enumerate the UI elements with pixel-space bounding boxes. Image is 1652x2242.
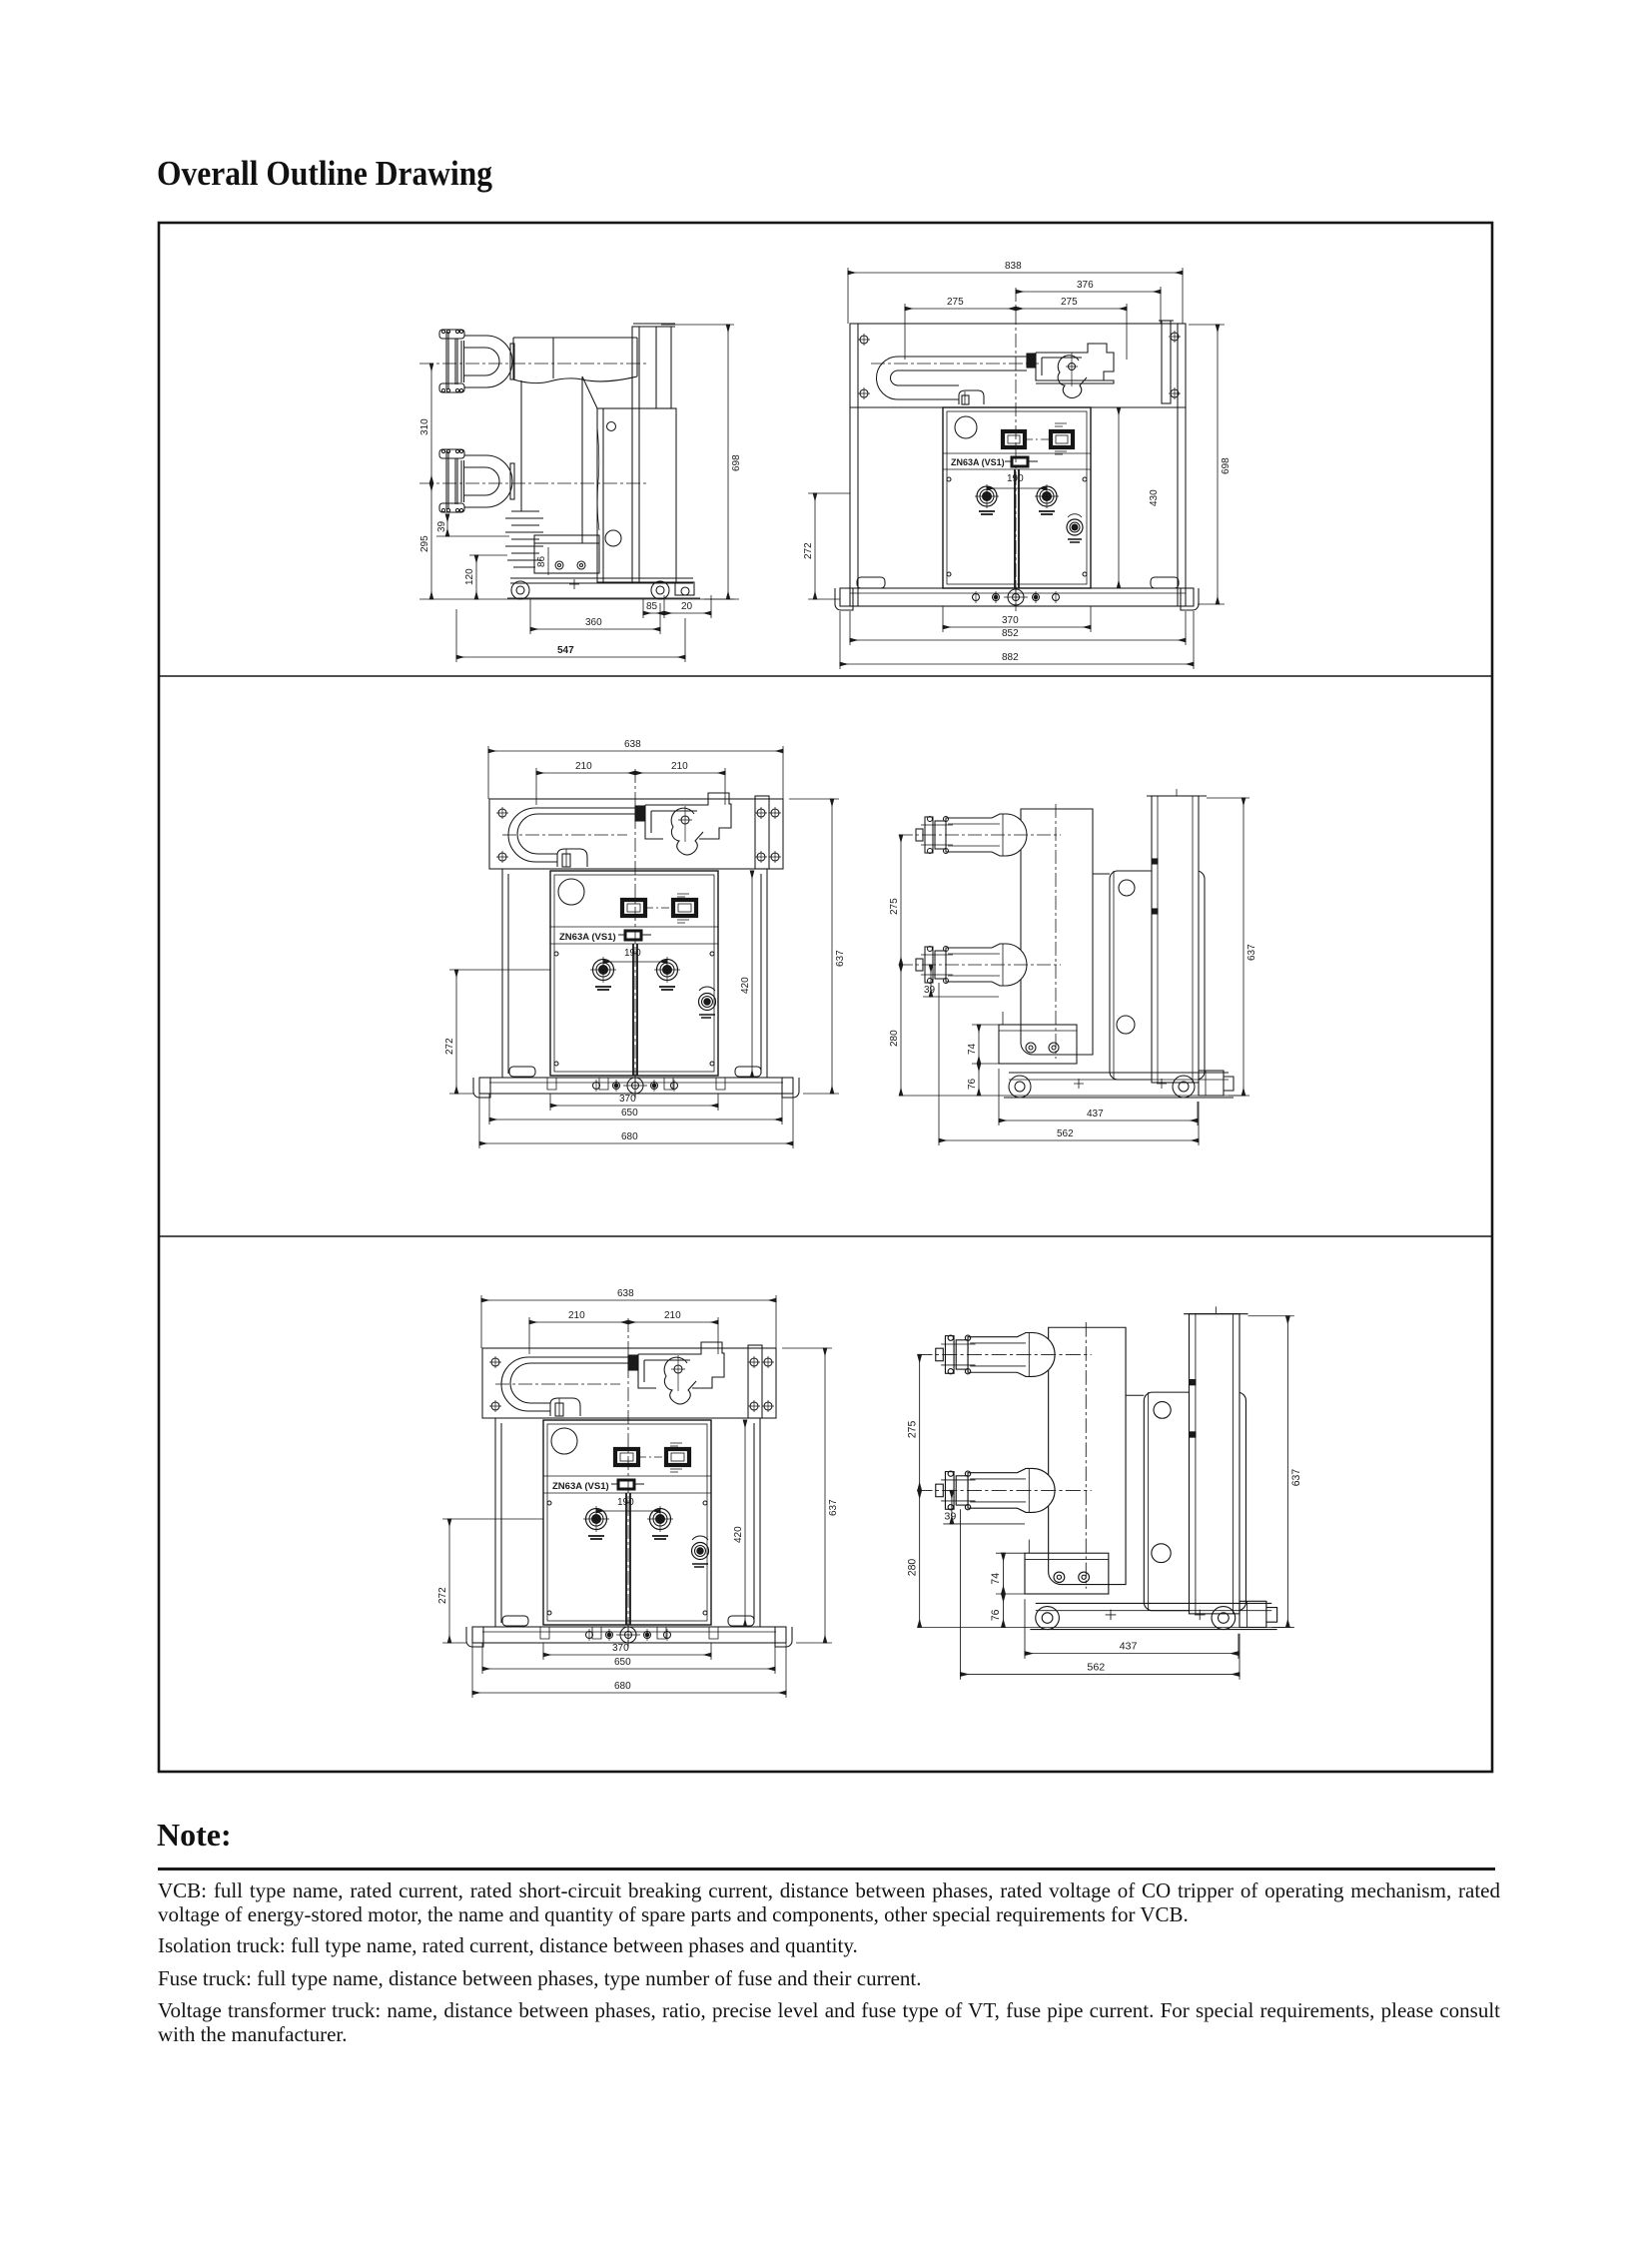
svg-text:852: 852 <box>1002 628 1019 639</box>
svg-text:370: 370 <box>1002 615 1019 626</box>
svg-text:272: 272 <box>444 1038 455 1055</box>
svg-text:882: 882 <box>1002 652 1019 663</box>
svg-text:85: 85 <box>646 601 658 612</box>
svg-text:637: 637 <box>1246 944 1257 961</box>
svg-text:210: 210 <box>671 761 688 772</box>
svg-text:280: 280 <box>889 1030 900 1047</box>
svg-text:ZN63A (VS1): ZN63A (VS1) <box>951 457 1005 467</box>
svg-text:420: 420 <box>740 977 751 994</box>
svg-text:ZN63A (VS1): ZN63A (VS1) <box>559 932 616 943</box>
svg-text:275: 275 <box>889 898 900 915</box>
svg-text:360: 360 <box>585 617 602 628</box>
svg-text:638: 638 <box>624 739 641 750</box>
svg-text:376: 376 <box>1077 280 1094 291</box>
svg-text:838: 838 <box>1005 261 1022 272</box>
svg-text:275: 275 <box>1061 297 1078 308</box>
svg-text:430: 430 <box>1149 489 1160 506</box>
svg-text:650: 650 <box>621 1108 638 1119</box>
svg-text:562: 562 <box>1057 1128 1074 1139</box>
svg-text:698: 698 <box>731 454 742 471</box>
svg-text:76: 76 <box>967 1078 978 1090</box>
svg-text:39: 39 <box>924 985 936 996</box>
svg-text:20: 20 <box>681 601 693 612</box>
svg-text:275: 275 <box>947 297 964 308</box>
svg-text:272: 272 <box>803 542 814 559</box>
svg-text:370: 370 <box>619 1094 636 1105</box>
svg-text:86: 86 <box>536 555 547 567</box>
svg-text:680: 680 <box>621 1131 638 1142</box>
svg-text:120: 120 <box>464 568 475 585</box>
svg-text:295: 295 <box>419 535 430 552</box>
svg-text:74: 74 <box>967 1043 978 1055</box>
svg-text:547: 547 <box>557 645 574 656</box>
svg-text:637: 637 <box>835 950 846 967</box>
svg-text:39: 39 <box>436 520 447 532</box>
svg-text:437: 437 <box>1087 1109 1104 1120</box>
svg-text:310: 310 <box>419 418 430 435</box>
svg-text:210: 210 <box>575 761 592 772</box>
svg-text:698: 698 <box>1221 457 1232 474</box>
